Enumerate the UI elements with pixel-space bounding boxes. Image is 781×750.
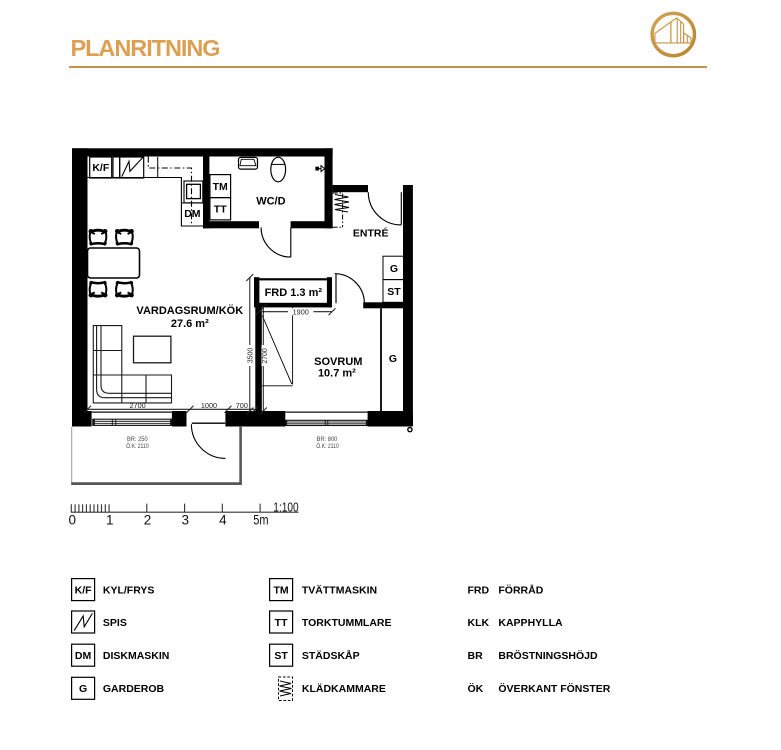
svg-text:G: G [79,683,87,695]
svg-text:WC/D: WC/D [256,195,285,207]
svg-text:FRD: FRD [468,584,490,596]
svg-text:K/F: K/F [75,584,93,596]
svg-text:GARDEROB: GARDEROB [103,683,165,695]
svg-text:STÄDSKÅP: STÄDSKÅP [302,649,360,662]
svg-text:ÖVERKANT FÖNSTER: ÖVERKANT FÖNSTER [498,682,610,695]
svg-text:TT: TT [275,617,288,629]
svg-text:TM: TM [274,584,289,596]
svg-text:1: 1 [106,512,114,527]
svg-text:VARDAGSRUM/KÖK: VARDAGSRUM/KÖK [136,304,243,317]
svg-text:10.7 m²: 10.7 m² [318,368,356,380]
svg-text:Ö.K: 2110: Ö.K: 2110 [316,443,339,450]
svg-text:1000: 1000 [201,401,217,410]
svg-text:BR: BR [468,650,484,662]
svg-text:ENTRÉ: ENTRÉ [353,226,389,239]
svg-text:FRD 1.3 m²: FRD 1.3 m² [265,287,323,299]
svg-text:TORKTUMMLARE: TORKTUMMLARE [302,617,392,629]
svg-text:KYL/FRYS: KYL/FRYS [103,584,155,596]
svg-text:KLK: KLK [468,617,490,629]
svg-text:3: 3 [181,512,189,527]
svg-text:1900: 1900 [293,308,309,317]
svg-text:FÖRRÅD: FÖRRÅD [498,583,543,596]
svg-text:TM: TM [213,181,228,193]
svg-text:27.6 m²: 27.6 m² [171,318,209,330]
svg-text:K/F: K/F [92,162,110,174]
svg-text:ST: ST [274,650,288,662]
svg-text:3500: 3500 [248,348,255,363]
svg-text:1:100: 1:100 [273,499,298,514]
svg-text:2700: 2700 [262,348,269,363]
svg-text:ST: ST [387,286,401,298]
svg-text:SOVRUM: SOVRUM [314,356,362,368]
svg-text:2: 2 [144,512,152,527]
svg-text:Ö.K: 2110: Ö.K: 2110 [126,443,149,450]
svg-text:5m: 5m [253,512,268,527]
svg-text:2700: 2700 [129,401,145,410]
svg-text:DM: DM [184,208,201,220]
svg-text:0: 0 [68,512,76,527]
svg-text:DM: DM [75,650,92,662]
svg-text:TT: TT [214,204,227,216]
svg-text:SPIS: SPIS [103,617,127,629]
svg-text:700: 700 [236,401,248,410]
svg-text:ÖK: ÖK [468,682,484,695]
svg-text:BRÖSTNINGSHÖJD: BRÖSTNINGSHÖJD [498,649,598,662]
svg-text:DISKMASKIN: DISKMASKIN [103,650,170,662]
svg-text:4: 4 [219,512,227,527]
svg-text:G: G [390,263,398,275]
svg-text:G: G [389,353,397,365]
svg-text:TVÄTTMASKIN: TVÄTTMASKIN [302,583,377,596]
svg-text:KAPPHYLLA: KAPPHYLLA [498,617,563,629]
svg-text:KLÄDKAMMARE: KLÄDKAMMARE [302,682,386,695]
